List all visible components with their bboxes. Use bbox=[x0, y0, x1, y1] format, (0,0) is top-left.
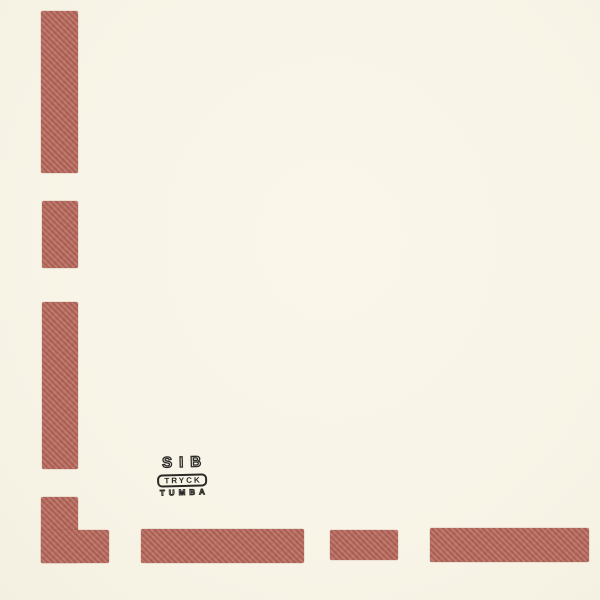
printer-mark-name: SIB bbox=[143, 454, 219, 471]
scanned-paper-page: SIB TRYCK TUMBA bbox=[0, 0, 600, 600]
left-dash-3 bbox=[42, 302, 78, 469]
printer-mark: SIB TRYCK TUMBA bbox=[143, 454, 220, 498]
bottom-dash-3 bbox=[430, 528, 589, 562]
corner-dash-horizontal bbox=[41, 530, 109, 563]
bottom-dash-2 bbox=[330, 530, 398, 560]
printer-mark-tryck-box: TRYCK bbox=[157, 473, 207, 487]
printer-mark-city: TUMBA bbox=[144, 487, 220, 498]
left-dash-2 bbox=[42, 201, 78, 268]
left-dash-1 bbox=[41, 11, 78, 173]
bottom-dash-1 bbox=[141, 529, 304, 563]
